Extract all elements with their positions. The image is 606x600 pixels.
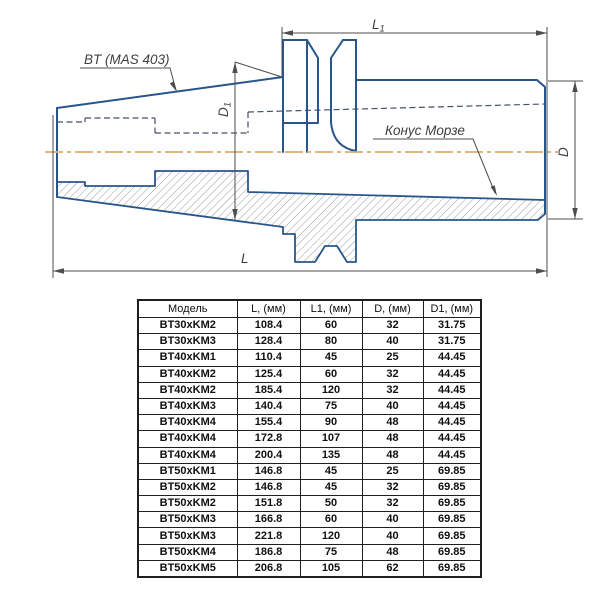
column-header: Модель — [138, 300, 237, 318]
l1-base: L — [372, 17, 380, 32]
table-cell: 32 — [362, 318, 423, 334]
table-row: BT40xKM4172.81074844.45 — [138, 431, 481, 447]
table-cell: 44.45 — [423, 415, 481, 431]
table-cell: 44.45 — [423, 431, 481, 447]
table-cell: 31.75 — [423, 334, 481, 350]
table-row: BT40xKM4200.41354844.45 — [138, 447, 481, 463]
table-cell: 172.8 — [237, 431, 300, 447]
table-cell: 221.8 — [237, 528, 300, 544]
table-cell: 120 — [300, 528, 362, 544]
section-hatch-lower-half — [57, 171, 545, 262]
table-cell: 32 — [362, 479, 423, 495]
table-cell: BT40xKM4 — [138, 447, 237, 463]
d1-base: D — [216, 107, 231, 117]
table-cell: 185.4 — [237, 382, 300, 398]
table-cell: 69.85 — [423, 544, 481, 560]
table-row: BT50xKM3221.81204069.85 — [138, 528, 481, 544]
table-cell: 60 — [300, 318, 362, 334]
table-row: BT30xKM2108.4603231.75 — [138, 318, 481, 334]
table-cell: 44.45 — [423, 398, 481, 414]
table-row: BT50xKM4186.8754869.85 — [138, 544, 481, 560]
table-cell: 25 — [362, 463, 423, 479]
morse-taper-label: Конус Морзе — [385, 123, 465, 138]
column-header: D1, (мм) — [423, 300, 481, 318]
table-cell: BT40xKM2 — [138, 366, 237, 382]
table-cell: 48 — [362, 431, 423, 447]
table-cell: 69.85 — [423, 496, 481, 512]
table-cell: 31.75 — [423, 318, 481, 334]
table-cell: BT50xKM4 — [138, 544, 237, 560]
table-cell: 60 — [300, 366, 362, 382]
table-cell: BT30xKM2 — [138, 318, 237, 334]
table-header-row: МодельL, (мм)L1, (мм)D, (мм)D1, (мм) — [138, 300, 481, 318]
table-cell: 40 — [362, 528, 423, 544]
dimension-label-l1: L1 — [372, 17, 385, 35]
flange-outline — [283, 40, 356, 152]
table-cell: 146.8 — [237, 479, 300, 495]
table-cell: 80 — [300, 334, 362, 350]
table-cell: 32 — [362, 382, 423, 398]
table-cell: 45 — [300, 350, 362, 366]
table-cell: 200.4 — [237, 447, 300, 463]
table-cell: 45 — [300, 479, 362, 495]
table-row: BT40xKM2185.41203244.45 — [138, 382, 481, 398]
hidden-bore-lines — [57, 104, 545, 133]
table-cell: 44.45 — [423, 366, 481, 382]
table-cell: BT40xKM2 — [138, 382, 237, 398]
table-cell: 50 — [300, 496, 362, 512]
table-cell: BT50xKM2 — [138, 479, 237, 495]
table-cell: 44.45 — [423, 350, 481, 366]
table-cell: 69.85 — [423, 528, 481, 544]
table-row: BT40xKM3140.4754044.45 — [138, 398, 481, 414]
table-cell: 48 — [362, 415, 423, 431]
table-cell: 44.45 — [423, 447, 481, 463]
table-cell: 108.4 — [237, 318, 300, 334]
column-header: L, (мм) — [237, 300, 300, 318]
table-cell: BT40xKM1 — [138, 350, 237, 366]
table-cell: 107 — [300, 431, 362, 447]
table-cell: 69.85 — [423, 512, 481, 528]
table-cell: 120 — [300, 382, 362, 398]
table-cell: 75 — [300, 398, 362, 414]
cylindrical-body-outline — [356, 80, 545, 214]
table-cell: BT30xKM3 — [138, 334, 237, 350]
table-row: BT50xKM1146.8452569.85 — [138, 463, 481, 479]
table-cell: BT50xKM2 — [138, 496, 237, 512]
table-row: BT50xKM5206.81056269.85 — [138, 560, 481, 577]
table-cell: 48 — [362, 447, 423, 463]
standard-label: BT (MAS 403) — [84, 52, 170, 67]
table-row: BT40xKM4155.4904844.45 — [138, 415, 481, 431]
table-cell: BT40xKM3 — [138, 398, 237, 414]
d1-sub: 1 — [223, 102, 234, 107]
column-header: L1, (мм) — [300, 300, 362, 318]
table-cell: 60 — [300, 512, 362, 528]
table-cell: 166.8 — [237, 512, 300, 528]
table-cell: 48 — [362, 544, 423, 560]
table-cell: 146.8 — [237, 463, 300, 479]
table-cell: 69.85 — [423, 560, 481, 577]
table-cell: 32 — [362, 496, 423, 512]
table-cell: BT50xKM5 — [138, 560, 237, 577]
table-cell: BT40xKM4 — [138, 431, 237, 447]
table-cell: 151.8 — [237, 496, 300, 512]
table-cell: 140.4 — [237, 398, 300, 414]
table-cell: 69.85 — [423, 479, 481, 495]
table-cell: 125.4 — [237, 366, 300, 382]
table-cell: 135 — [300, 447, 362, 463]
table-cell: 62 — [362, 560, 423, 577]
table-row: BT50xKM2146.8453269.85 — [138, 479, 481, 495]
table-cell: 40 — [362, 334, 423, 350]
table-cell: BT50xKM3 — [138, 528, 237, 544]
table-cell: BT40xKM4 — [138, 415, 237, 431]
table-cell: 32 — [362, 366, 423, 382]
table-cell: 69.85 — [423, 463, 481, 479]
table-cell: 75 — [300, 544, 362, 560]
table-cell: 105 — [300, 560, 362, 577]
table-cell: 110.4 — [237, 350, 300, 366]
table-row: BT40xKM2125.4603244.45 — [138, 366, 481, 382]
table-cell: 206.8 — [237, 560, 300, 577]
dimension-label-l: L — [241, 251, 249, 266]
table-cell: 45 — [300, 463, 362, 479]
l1-sub: 1 — [380, 24, 385, 35]
page: BT (MAS 403) Конус Морзе L1 D1 D L Модел… — [0, 0, 606, 600]
table-row: BT50xKM3166.8604069.85 — [138, 512, 481, 528]
column-header: D, (мм) — [362, 300, 423, 318]
table-cell: BT50xKM3 — [138, 512, 237, 528]
table-cell: 44.45 — [423, 382, 481, 398]
table-row: BT30xKM3128.4804031.75 — [138, 334, 481, 350]
table-cell: 155.4 — [237, 415, 300, 431]
table-cell: 90 — [300, 415, 362, 431]
dimensions-table: МодельL, (мм)L1, (мм)D, (мм)D1, (мм) BT3… — [137, 299, 482, 578]
table-cell: 40 — [362, 512, 423, 528]
table-cell: 186.8 — [237, 544, 300, 560]
table-cell: 128.4 — [237, 334, 300, 350]
dimension-label-d: D — [556, 147, 571, 157]
table-cell: BT50xKM1 — [138, 463, 237, 479]
table-row: BT40xKM1110.4452544.45 — [138, 350, 481, 366]
dimension-label-d1: D1 — [216, 102, 234, 117]
tool-holder-technical-drawing: BT (MAS 403) Конус Морзе L1 D1 D L — [0, 0, 606, 300]
table-cell: 25 — [362, 350, 423, 366]
table-cell: 40 — [362, 398, 423, 414]
table-row: BT50xKM2151.8503269.85 — [138, 496, 481, 512]
